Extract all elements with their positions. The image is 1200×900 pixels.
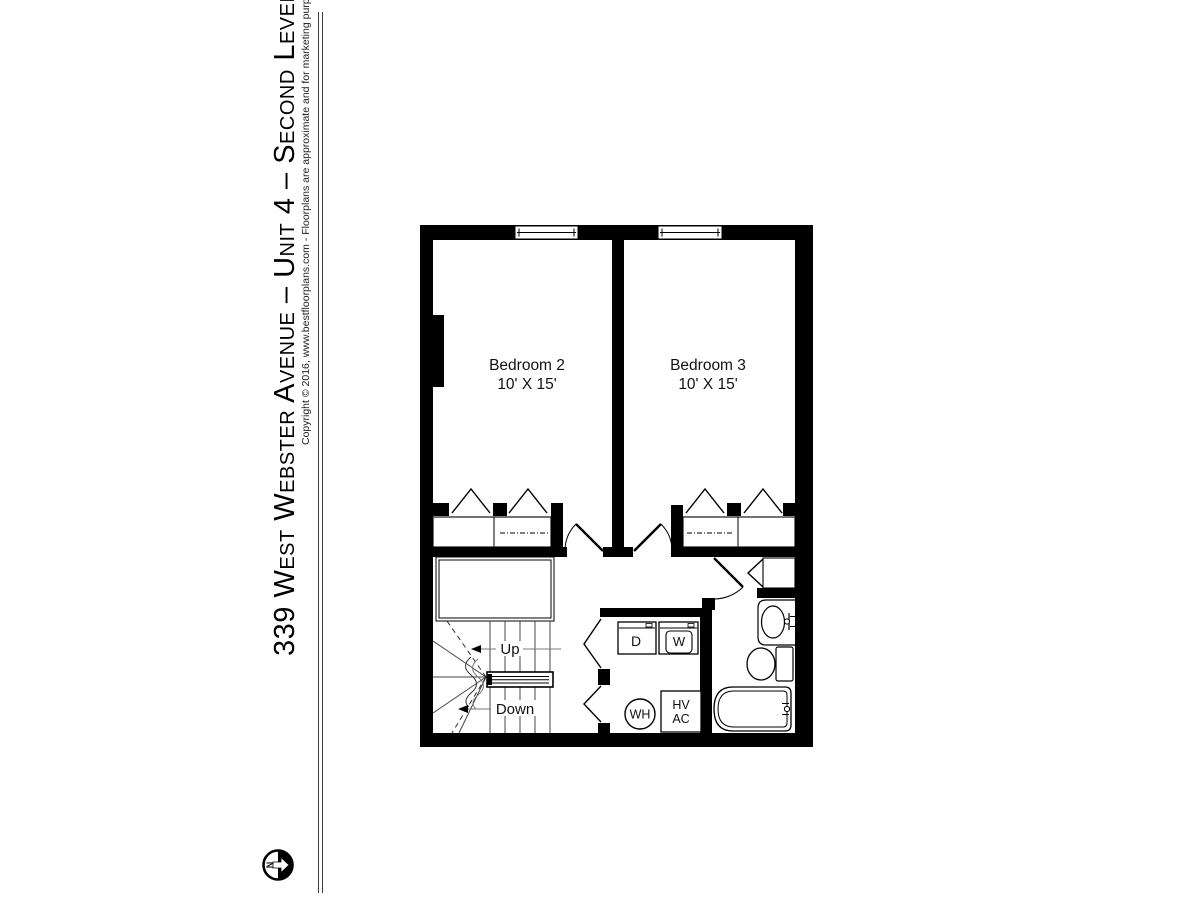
- stairwell-opening: [436, 557, 554, 621]
- window-icon-bedroom2: [515, 226, 578, 239]
- bifold-door-icon: [509, 489, 547, 513]
- copyright-text: Copyright © 2016, www.bestfloorplans.com…: [299, 11, 313, 445]
- window-icon-bedroom3: [658, 226, 722, 239]
- bifold-door-icon: [744, 489, 782, 513]
- compass-n-label: N: [265, 862, 275, 869]
- down-label: Down: [496, 701, 534, 718]
- bedroom2-door: [565, 524, 603, 551]
- water-heater-icon: WH: [625, 699, 655, 729]
- hvac-label-line2: AC: [672, 712, 689, 726]
- water-heater-label: WH: [630, 708, 651, 722]
- bathroom-door: [714, 558, 743, 599]
- floor-plan: Up Down D W WH HV AC: [420, 224, 814, 748]
- stair-handrail: [487, 672, 553, 687]
- washer-label: W: [673, 634, 686, 649]
- bifold-door-icon: [686, 489, 724, 513]
- bedroom3-door: [634, 524, 672, 551]
- dryer-label: D: [631, 633, 641, 649]
- bathtub-icon: [714, 687, 791, 731]
- bedroom2-dimensions: 10' X 15': [497, 376, 556, 393]
- bifold-door-icon: [748, 559, 763, 587]
- up-arrow-icon: [471, 645, 481, 653]
- dryer-icon: D: [618, 622, 656, 654]
- hvac-icon: HV AC: [661, 691, 701, 732]
- linen-closet: [748, 558, 795, 588]
- divider-rule: [318, 12, 323, 893]
- washer-icon: W: [659, 622, 698, 654]
- hvac-label-line1: HV: [672, 698, 690, 712]
- down-arrow-icon: [458, 705, 468, 713]
- toilet-icon: [747, 647, 793, 681]
- bedroom2-label: Bedroom 2: [489, 357, 565, 374]
- sink-icon: [758, 600, 795, 645]
- floor-plan-page: 339 West Webster Avenue – Unit 4 – Secon…: [0, 0, 1200, 900]
- bedroom3-dimensions: 10' X 15': [678, 376, 737, 393]
- up-label: Up: [500, 641, 519, 658]
- bifold-door-icon: [452, 489, 490, 513]
- north-arrow-icon: N: [260, 848, 296, 884]
- bedroom2-closet: [433, 489, 551, 547]
- bedroom3-label: Bedroom 3: [670, 357, 746, 374]
- bedroom3-closet: [683, 489, 795, 547]
